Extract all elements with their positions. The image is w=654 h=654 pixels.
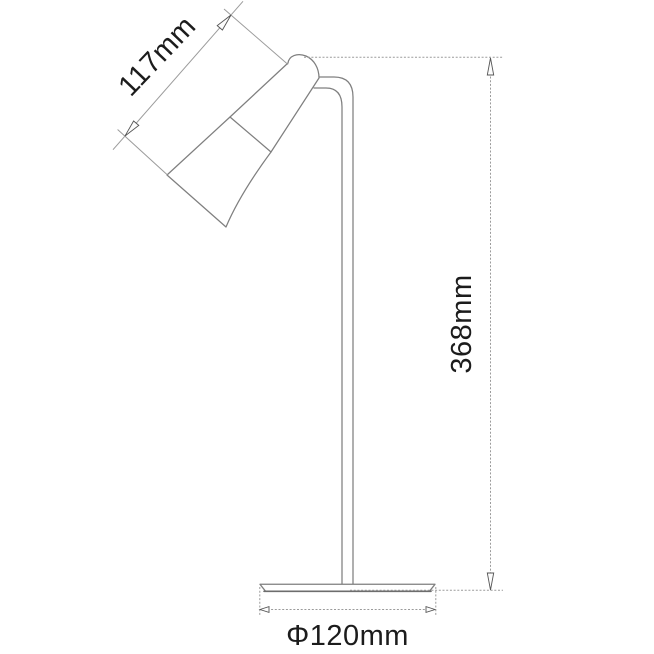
arrowhead-left [260,607,269,613]
technical-drawing-page: 117mm 368mm Φ120mm [0,0,654,654]
base-outline [260,584,435,591]
pole-inner-line [314,88,342,585]
dimension-label-head-length: 117mm [112,10,202,102]
dimension-height: 368mm [304,57,503,590]
arrowhead-down [487,573,493,590]
lamp-pole [314,77,353,585]
lamp-dimension-drawing: 117mm 368mm Φ120mm [0,0,654,654]
extension-line-head-rear [224,9,288,65]
arrowhead-right [426,607,435,613]
lamp-head-outline [167,55,319,227]
dimension-base-diameter: Φ120mm [260,587,436,652]
arrowhead-up-right [217,15,231,30]
dimension-label-height: 368mm [446,274,478,373]
arrowhead-down-left [125,121,139,136]
lamp-base [260,584,435,591]
lamp-head [167,55,319,227]
arrowhead-up [487,58,493,75]
pole-outer-line [319,77,353,585]
dimension-label-base-diameter: Φ120mm [286,620,409,652]
